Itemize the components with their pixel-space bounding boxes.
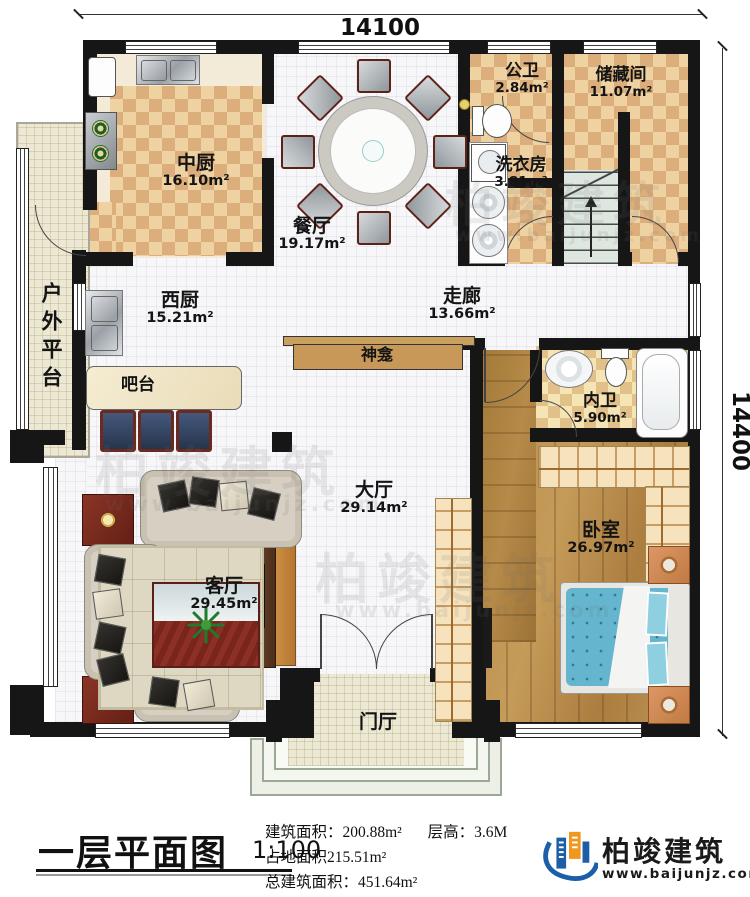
room-label-kitchen-main: 中厨 16.10m²: [162, 153, 229, 190]
sofa-cushion: [148, 676, 180, 708]
bath-sink: [545, 350, 593, 388]
room-label-dining: 餐厅 19.17m²: [278, 216, 345, 253]
wall-toprooms-south-d: [678, 252, 700, 266]
kitchen-sink: [136, 55, 200, 85]
window-bedroom-south: [515, 723, 642, 738]
floor-plan-sheet: 柏竣建筑 www.baijunjz.com 柏竣建筑 www.baijunjz.…: [0, 0, 750, 897]
wall-toprooms-south-b: [552, 252, 564, 266]
porch-pillar-right-notch: [484, 700, 500, 742]
dining-chair: [357, 59, 391, 93]
nightstand: [648, 546, 690, 584]
window-corridor-east: [689, 283, 701, 337]
room-label-corridor: 走廊 13.66m²: [428, 286, 495, 323]
room-label-kitchen-west: 西厨 15.21m²: [146, 290, 213, 327]
wall-toprooms-south-c: [618, 252, 632, 266]
wall-living-nw-b: [10, 430, 44, 463]
dining-chair: [281, 135, 315, 169]
door-leaf-bedroom: [484, 348, 486, 402]
sofa-cushion: [183, 679, 215, 711]
stats-block: 建筑面积：200.88m² 层高：3.6M 占地面积215.51m² 总建筑面积…: [265, 820, 507, 895]
fridge: [88, 57, 116, 97]
window-platform-west: [16, 148, 29, 430]
window-kitchen-north: [125, 41, 217, 54]
window-living-west: [43, 467, 58, 687]
window-wc-north: [487, 41, 551, 54]
brand-name: 柏竣建筑: [602, 830, 726, 870]
window-storage-north: [583, 41, 657, 54]
bar-counter: [86, 366, 242, 410]
nightstand: [648, 686, 690, 724]
toilet-wc-bowl: [482, 104, 512, 138]
dimension-right-value: 14400: [727, 391, 750, 471]
floor-kitchen-checker2: [86, 202, 116, 258]
wall-kitchen-south-a: [85, 252, 133, 266]
room-label-laundry: 洗衣房 3.81m²: [494, 156, 547, 190]
bathtub: [636, 348, 688, 438]
window-bathroom-east: [689, 350, 701, 430]
wall-kitchen-east-b: [262, 158, 274, 266]
room-label-shrine: 神龛: [361, 346, 393, 364]
watermark-url: www.baijunjz.com: [335, 598, 614, 622]
room-label-platform: 户外平台: [36, 282, 66, 394]
stats-line-3: 总建筑面积：451.64m²: [265, 870, 507, 895]
brand-url: www.baijunjz.com: [602, 866, 750, 882]
room-label-entry: 门厅: [359, 712, 397, 733]
room-label-hall: 大厅 29.14m²: [340, 480, 407, 517]
dining-chair: [357, 211, 391, 245]
title-underline-2: [36, 874, 292, 876]
stove: [85, 112, 117, 170]
sofa-cushion: [92, 588, 124, 620]
room-label-bathroom-master: 内卫 5.90m²: [573, 392, 626, 426]
room-label-wc: 公卫 2.84m²: [495, 62, 548, 96]
title-underline: [36, 869, 292, 872]
dimension-top-value: 14100: [340, 15, 420, 41]
room-label-living: 客厅 29.45m²: [190, 576, 257, 613]
room-label-bar: 吧台: [121, 376, 155, 395]
stats-line-1: 建筑面积：200.88m² 层高：3.6M: [265, 820, 507, 845]
wall-west-mid: [72, 250, 86, 450]
stats-line-2: 占地面积215.51m²: [265, 845, 507, 870]
room-label-storage: 储藏间 11.07m²: [590, 66, 653, 100]
sofa-cushion: [93, 621, 126, 654]
porch-pillar-left-notch: [266, 700, 282, 742]
wall-kitchen-east-a: [262, 54, 274, 104]
window-living-south: [95, 723, 230, 738]
watermark-url: www.baijunjz.com: [455, 225, 703, 246]
wc-light: [459, 99, 470, 110]
bed-pillow: [645, 591, 669, 636]
brand-logo-icon: [540, 828, 598, 884]
room-label-bedroom: 卧室 26.97m²: [567, 520, 634, 557]
sofa-cushion: [94, 554, 126, 586]
dining-chair: [433, 135, 467, 169]
bed-pillow: [645, 641, 669, 686]
westkitchen-sink: [85, 290, 123, 356]
bath-toilet-bowl: [605, 357, 627, 387]
porch-pillar-left: [280, 668, 314, 738]
closet-bedroom-top: [538, 446, 690, 488]
window-dining-north: [298, 41, 450, 54]
dining-table-hub: [362, 140, 384, 162]
dimension-line-right: [722, 48, 723, 736]
